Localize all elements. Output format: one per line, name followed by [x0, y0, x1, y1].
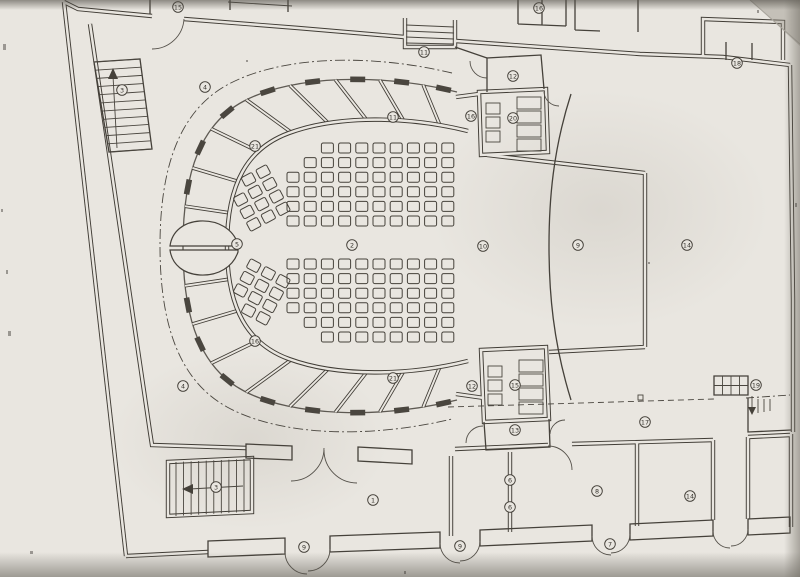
room-number: 11 — [420, 48, 428, 56]
room-number: 6 — [508, 503, 512, 511]
room-number: 4 — [181, 382, 185, 390]
room-number: 16 — [251, 337, 259, 345]
room-number: 15 — [511, 381, 519, 389]
room-number: 21 — [251, 142, 259, 150]
room-number: 4 — [203, 83, 207, 91]
room-number: 19 — [752, 381, 760, 389]
room-number: 9 — [458, 542, 462, 550]
room-number: 10 — [479, 242, 487, 250]
edge-shadow-bottom — [0, 552, 800, 577]
room-number: 9 — [302, 543, 306, 551]
room-number: 11 — [389, 113, 397, 121]
room-number: 7 — [608, 540, 612, 548]
room-number: 6 — [508, 476, 512, 484]
scanned-floor-plan: 3154211116121620111852109141621412151317… — [0, 0, 800, 577]
edge-shadow-top — [0, 0, 800, 10]
room-number: 2 — [350, 241, 354, 249]
room-number: 12 — [509, 72, 517, 80]
room-number: 16 — [467, 112, 475, 120]
room-number: 20 — [509, 114, 517, 122]
room-number: 12 — [468, 382, 476, 390]
loge-pier — [350, 410, 365, 416]
room-number: 3 — [214, 483, 218, 491]
room-number: 13 — [511, 426, 519, 434]
room-number: 18 — [733, 59, 741, 67]
room-number: 17 — [641, 418, 649, 426]
room-number: 9 — [576, 241, 580, 249]
room-number: 14 — [683, 241, 691, 249]
room-number: 1 — [371, 496, 375, 504]
floor-plan-svg: 3154211116121620111852109141621412151317… — [0, 0, 800, 577]
room-number: 14 — [686, 492, 694, 500]
room-number: 8 — [595, 487, 599, 495]
room-number: 21 — [389, 374, 397, 382]
edge-shadow-right — [784, 0, 800, 577]
room-number: 5 — [235, 240, 239, 248]
loge-pier — [350, 77, 365, 83]
room-number: 3 — [120, 86, 124, 94]
